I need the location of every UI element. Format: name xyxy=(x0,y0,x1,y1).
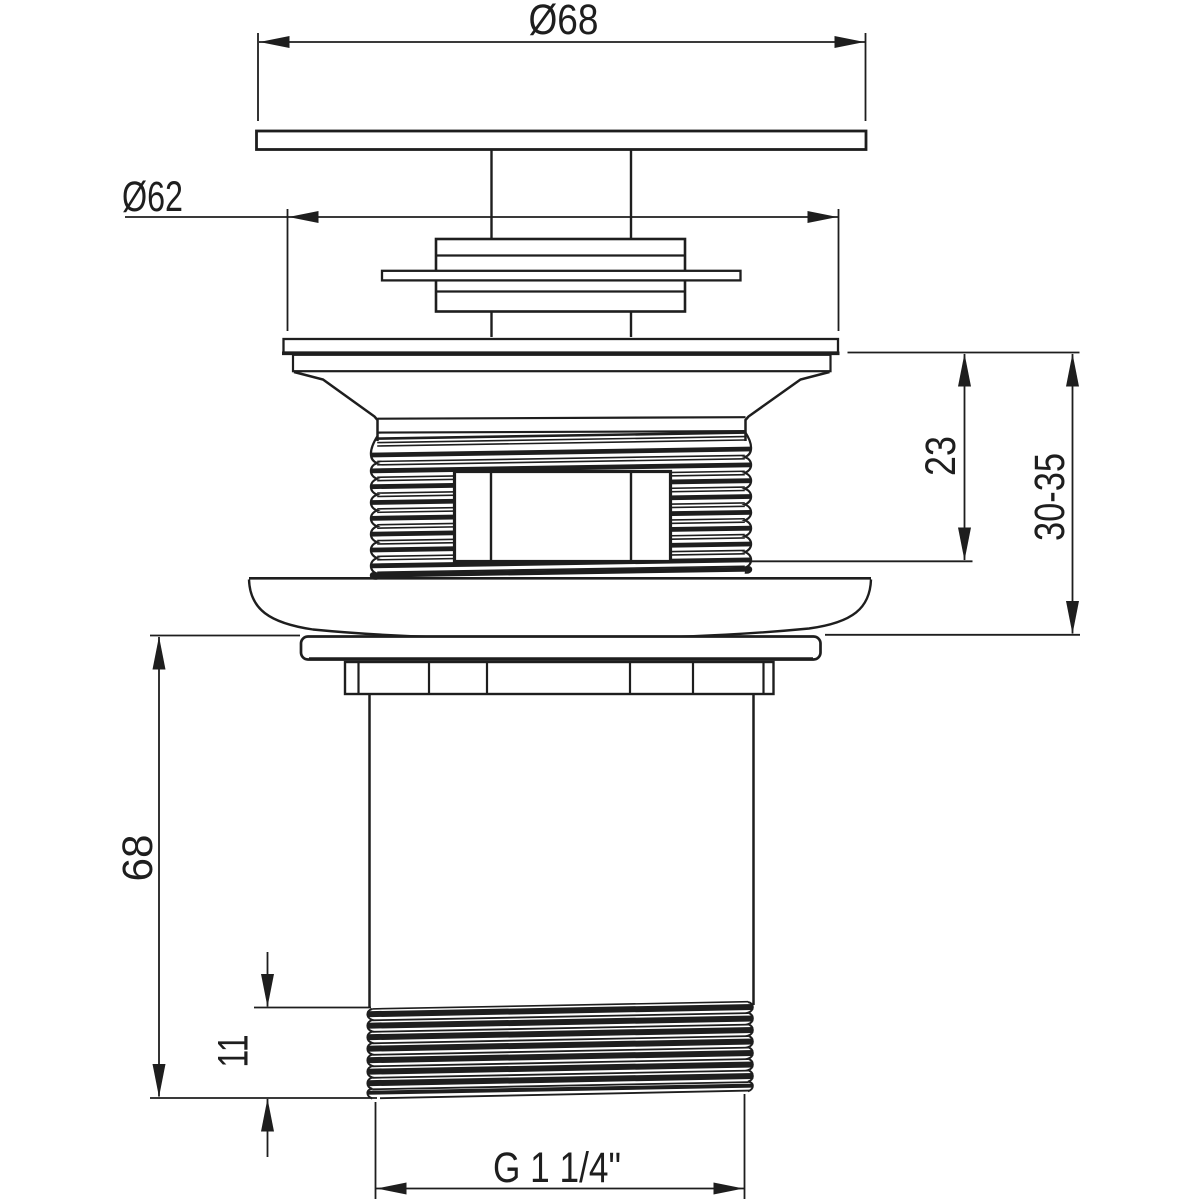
svg-text:68: 68 xyxy=(114,835,162,882)
svg-text:G 1 1/4": G 1 1/4" xyxy=(493,1144,621,1192)
svg-text:23: 23 xyxy=(917,436,965,476)
svg-text:30-35: 30-35 xyxy=(1026,453,1074,541)
svg-text:11: 11 xyxy=(210,1035,258,1068)
svg-text:Ø62: Ø62 xyxy=(122,173,183,221)
svg-text:Ø68: Ø68 xyxy=(529,0,599,44)
